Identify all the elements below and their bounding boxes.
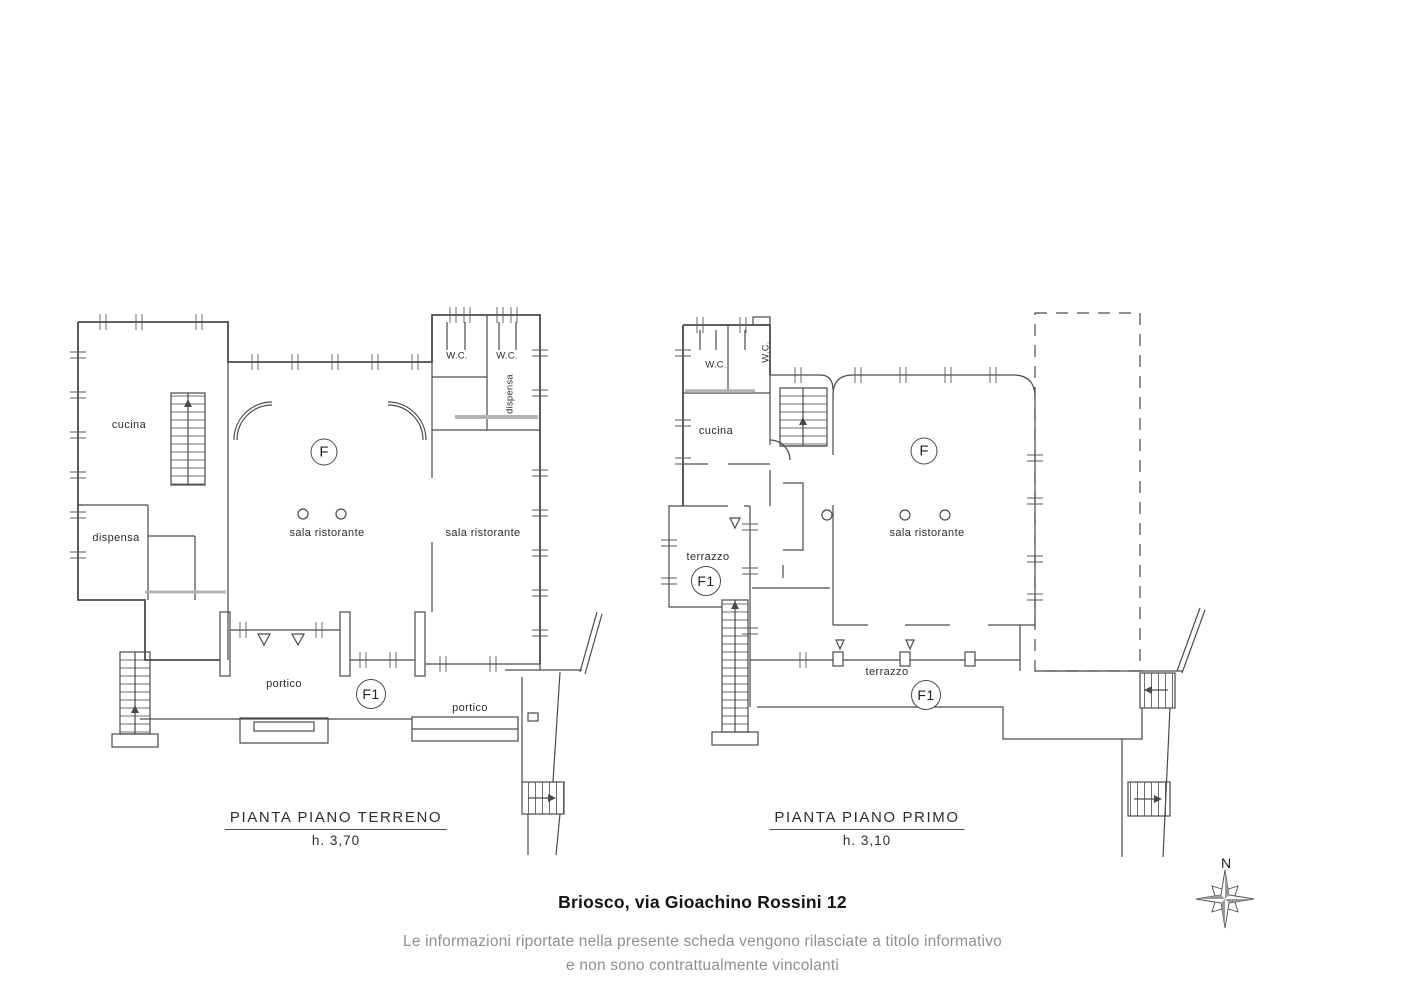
room-label-portico: portico [266,678,302,690]
room-label-cucina: cucina [699,425,733,437]
room-label-cucina: cucina [112,419,146,431]
plan-height-ground-floor: h. 3,70 [312,833,360,848]
flat-marker-f: F [311,439,338,466]
room-label-dispensa-vertical: dispensa [505,374,516,414]
disclaimer-line-1: Le informazioni riportate nella presente… [0,933,1405,951]
plan-title-first-floor: PIANTA PIANO PRIMO [769,809,964,830]
flat-marker-f1: F1 [356,679,386,709]
room-label-portico: portico [452,702,488,714]
floor-plan-drawing [0,0,1405,993]
room-label-dispensa: dispensa [92,532,139,544]
floor-plan-sheet: cucina dispensa sala ristorante sala ris… [0,0,1405,993]
disclaimer-line-2: e non sono contrattualmente vincolanti [0,957,1405,975]
flat-marker-f: F [911,438,938,465]
plan-title-ground-floor: PIANTA PIANO TERRENO [225,809,447,830]
room-label-wc-vertical: W.C. [761,341,772,362]
room-label-sala-ristorante: sala ristorante [445,527,520,539]
room-label-wc: W.C. [705,360,726,371]
room-label-wc: W.C. [446,351,467,362]
room-label-sala-ristorante: sala ristorante [289,527,364,539]
plan-height-first-floor: h. 3,10 [843,833,891,848]
first-floor-plan-drawing [661,313,1205,857]
room-label-terrazzo: terrazzo [687,551,730,563]
room-label-sala-ristorante: sala ristorante [889,527,964,539]
property-address: Briosco, via Gioachino Rossini 12 [0,892,1405,913]
flat-marker-f1: F1 [911,680,941,710]
ground-floor-plan-drawing [70,307,602,855]
flat-marker-f1: F1 [691,566,721,596]
room-label-terrazzo: terrazzo [866,666,909,678]
room-label-wc: W.C. [496,351,517,362]
compass-north-label: N [1221,855,1231,871]
